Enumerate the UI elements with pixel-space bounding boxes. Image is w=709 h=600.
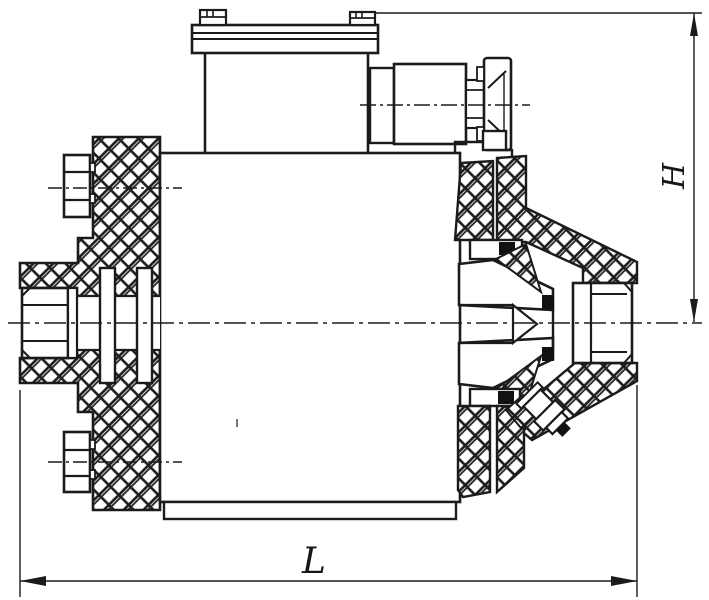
cover-screw-left [200, 10, 226, 25]
l-dimension-label: L [301, 541, 326, 582]
seat-seal-upper [542, 295, 554, 309]
l-arrow-right [611, 576, 637, 586]
valve-poppet [459, 244, 554, 404]
inlet-sleeve [100, 268, 115, 383]
lower-column-inner [458, 406, 490, 497]
l-arrow-left [20, 576, 46, 586]
upper-housing [205, 53, 368, 153]
main-body [160, 153, 460, 519]
flange-bolt-upper [64, 155, 95, 217]
poppet-tip [513, 305, 537, 343]
bonnet-tab [483, 131, 506, 150]
connector-neck [466, 80, 484, 128]
inlet-sleeve-inner [137, 268, 152, 383]
valve-section-drawing: H L [0, 0, 709, 600]
h-arrow-bottom [690, 299, 698, 322]
bonnet-inner-column [455, 161, 493, 240]
connector-body [394, 64, 466, 144]
cover-screw-right [350, 12, 375, 25]
h-dimension-label: H [657, 162, 692, 190]
base-plate [164, 502, 456, 519]
technical-drawing-page: H L [0, 0, 709, 600]
seat-seal-lower [542, 347, 554, 361]
top-cover [192, 10, 378, 53]
seal-lower [498, 391, 514, 404]
h-arrow-top [690, 13, 698, 36]
